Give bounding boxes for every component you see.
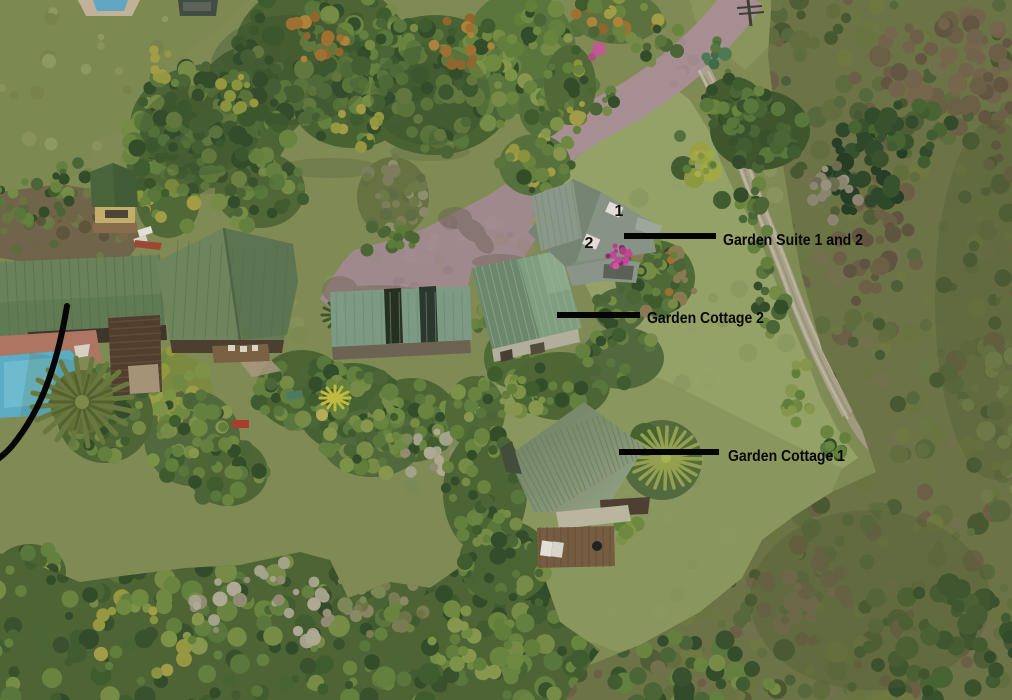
svg-text:Garden Cottage 2: Garden Cottage 2 [647,310,764,327]
svg-text:Garden Cottage 1: Garden Cottage 1 [728,448,845,465]
svg-text:Garden Suite 1 and 2: Garden Suite 1 and 2 [723,232,863,249]
